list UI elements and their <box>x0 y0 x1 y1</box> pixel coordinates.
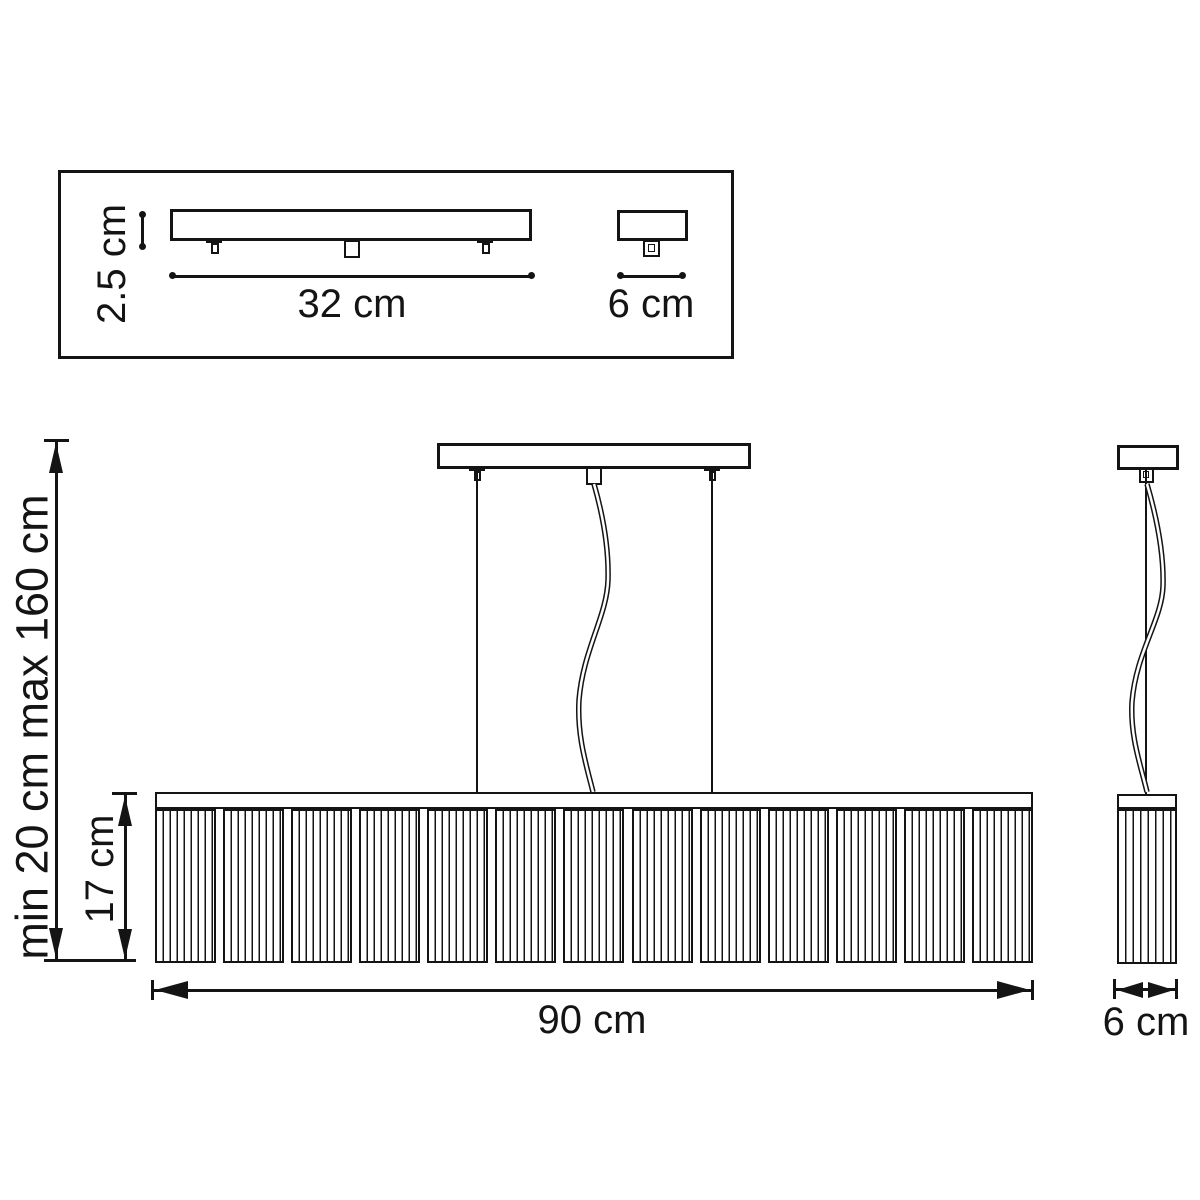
canopy-plate-end-view <box>617 210 688 241</box>
suspension-wire-left <box>476 469 478 793</box>
shade-panel <box>972 809 1033 963</box>
dim-line-canopy-height <box>141 214 144 248</box>
arrow-left-icon <box>1117 982 1143 998</box>
suspension-wire-side <box>1145 470 1147 795</box>
shade-panel <box>223 809 284 963</box>
shade-top-rail-front <box>155 792 1033 809</box>
shade-panel <box>632 809 693 963</box>
shade-panel <box>427 809 488 963</box>
canopy-height-label: 2.5 cm <box>90 204 134 324</box>
stud-inner-detail <box>648 244 655 252</box>
dimension-drawing: 2.5 cm 32 cm 6 cm <box>0 0 1200 1200</box>
fixture-canopy-front <box>437 443 751 469</box>
canopy-detail-box <box>58 170 734 359</box>
dim-line-canopy-length <box>172 275 532 278</box>
shade-depth-label: 6 cm <box>1103 1000 1190 1044</box>
shade-top-rail-side <box>1117 794 1177 809</box>
cable-outlet-stud-icon <box>344 240 360 258</box>
shade-panel <box>359 809 420 963</box>
shade-panel <box>836 809 897 963</box>
shade-front <box>155 809 1033 963</box>
canopy-plate-front-view <box>170 209 532 241</box>
suspension-height-label: min 20 cm max 160 cm <box>7 494 57 959</box>
canopy-depth-label: 6 cm <box>608 282 695 326</box>
shade-panel <box>563 809 624 963</box>
arrow-up-icon <box>49 443 63 473</box>
dim-line-shade-width <box>153 989 1033 992</box>
power-cable-side <box>1132 484 1163 792</box>
shade-panel <box>700 809 761 963</box>
suspension-wire-right <box>711 469 713 793</box>
dim-endpoint-dot <box>679 272 686 279</box>
shade-panel <box>495 809 556 963</box>
shade-width-label: 90 cm <box>538 998 647 1042</box>
dim-endpoint-dot <box>169 272 176 279</box>
shade-height-label: 17 cm <box>78 815 122 924</box>
dim-tick <box>44 959 136 962</box>
arrow-left-icon <box>155 981 188 999</box>
shade-panel <box>155 809 216 963</box>
canopy-length-label: 32 cm <box>298 282 407 326</box>
arrow-right-icon <box>1148 982 1174 998</box>
fixture-canopy-side <box>1117 445 1179 470</box>
shade-panel <box>904 809 965 963</box>
dim-endpoint-dot <box>617 272 624 279</box>
dim-endpoint-dot <box>528 272 535 279</box>
shade-panel <box>768 809 829 963</box>
arrow-right-icon <box>997 981 1030 999</box>
mounting-stud-icon <box>482 243 490 254</box>
shade-panel <box>291 809 352 963</box>
cable-outlet-stud-icon <box>586 467 602 485</box>
mounting-stud-icon <box>211 243 219 254</box>
dim-line-canopy-depth <box>620 275 683 278</box>
arrow-down-icon <box>118 929 132 959</box>
power-cable-front <box>579 484 608 792</box>
shade-side-panel <box>1117 809 1177 964</box>
